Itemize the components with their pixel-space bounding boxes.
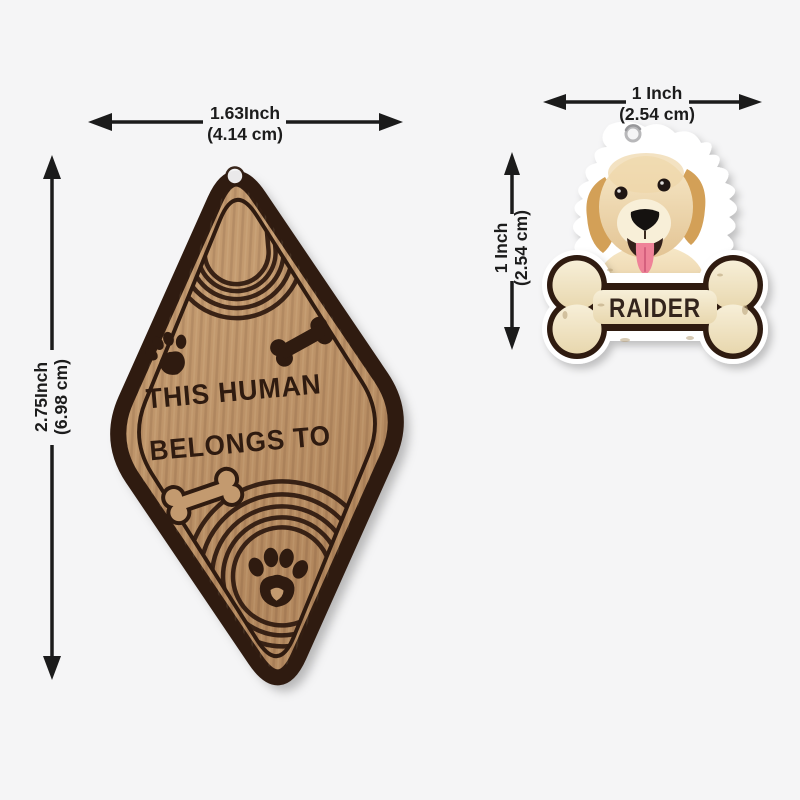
- charm-height-inch: 1 Inch: [491, 223, 511, 274]
- charm-width-inch: 1 Inch: [632, 83, 683, 103]
- charm-width-cm: (2.54 cm): [619, 104, 695, 124]
- keychain-height-cm: (6.98 cm): [51, 359, 71, 435]
- hang-hole: [626, 127, 640, 141]
- keychain: THIS HUMAN BELONGS TO: [60, 130, 480, 710]
- product-image-canvas: THIS HUMAN BELONGS TO: [0, 0, 800, 800]
- keychain-height-arrow: 2.75Inch (6.98 cm): [31, 155, 71, 680]
- keychain-height-inch: 2.75Inch: [31, 362, 51, 432]
- charm: RAIDER: [542, 121, 768, 364]
- charm-height-cm: (2.54 cm): [511, 210, 531, 286]
- dog-right-eye: [658, 179, 671, 192]
- pet-name-text: RAIDER: [609, 293, 701, 323]
- keychain-width-inch: 1.63Inch: [210, 103, 280, 123]
- eye-highlight: [617, 189, 621, 193]
- product-size-chart: THIS HUMAN BELONGS TO: [0, 0, 800, 800]
- keychain-width-arrow: 1.63Inch (4.14 cm): [88, 103, 403, 144]
- hang-hole: [226, 167, 244, 185]
- charm-width-arrow: 1 Inch (2.54 cm): [543, 83, 762, 124]
- eye-highlight: [660, 181, 664, 185]
- dog-left-eye: [615, 187, 628, 200]
- keychain-width-cm: (4.14 cm): [207, 124, 283, 144]
- charm-height-arrow: 1 Inch (2.54 cm): [491, 152, 531, 350]
